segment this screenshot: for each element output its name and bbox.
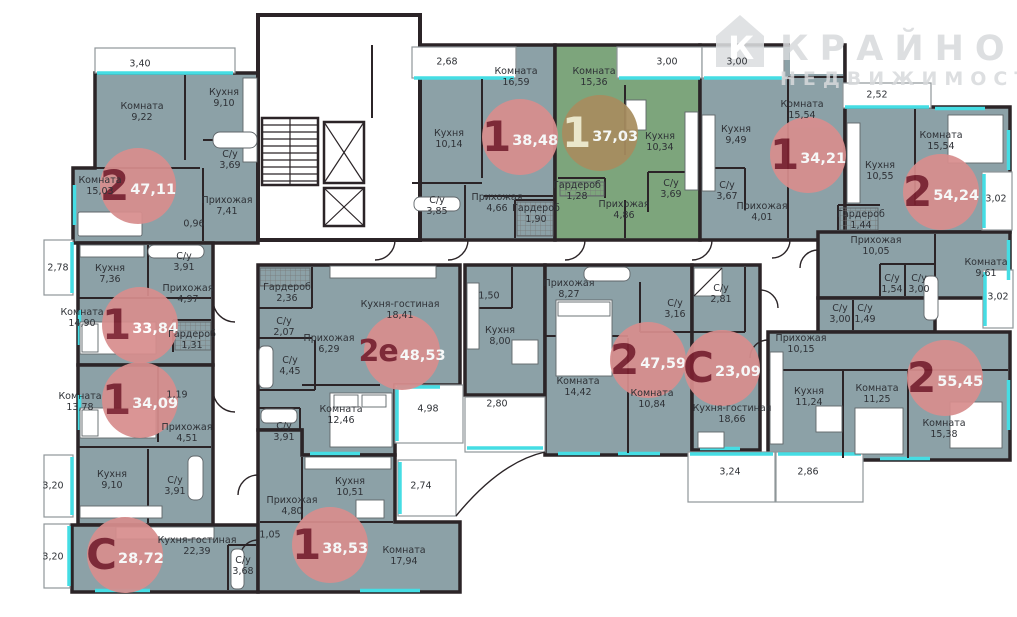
room-label: Кухня-гостиная22,39 bbox=[158, 535, 237, 557]
room-area: 18,66 bbox=[693, 414, 772, 425]
room-label: 3,02 bbox=[985, 193, 1006, 204]
room-area: 4,80 bbox=[267, 506, 318, 517]
room-area: 3,85 bbox=[426, 206, 447, 217]
room-label: 0,96 bbox=[183, 218, 204, 229]
room-label: Кухня9,49 bbox=[721, 124, 751, 146]
room-label: С/у2,07 bbox=[273, 316, 294, 338]
room-label: Прихожая10,15 bbox=[776, 333, 827, 355]
room-label: Кухня11,24 bbox=[794, 386, 824, 408]
room-area: 2,74 bbox=[410, 480, 431, 491]
room-label: Прихожая4,86 bbox=[599, 199, 650, 221]
room-area: 2,68 bbox=[436, 56, 457, 67]
room-label: Комната16,59 bbox=[494, 66, 537, 88]
room-name: Прихожая bbox=[162, 422, 213, 433]
room-area: 2,78 bbox=[47, 262, 68, 273]
room-name: Гардероб bbox=[168, 329, 216, 340]
room-area: 4,45 bbox=[279, 366, 300, 377]
apartment-total-area: 54,24 bbox=[933, 188, 979, 204]
room-name: Гардероб bbox=[263, 282, 311, 293]
room-area: 13,78 bbox=[58, 402, 101, 413]
room-label: Комната9,22 bbox=[120, 101, 163, 123]
room-label: Комната15,03 bbox=[78, 175, 121, 197]
apartment-type: С bbox=[86, 534, 116, 576]
room-label: 4,98 bbox=[417, 403, 438, 414]
room-area: 3,69 bbox=[660, 189, 681, 200]
room-label: Гардероб1,44 bbox=[837, 209, 885, 231]
floor-plan: К КРАЙНОВ НЕДВИЖИМОСТЬ 3,40Комната9,22Ку… bbox=[0, 0, 1017, 617]
room-area: 1,49 bbox=[854, 314, 875, 325]
room-label: Кухня-гостиная18,66 bbox=[693, 403, 772, 425]
room-name: Комната bbox=[120, 101, 163, 112]
room-area: 3,69 bbox=[219, 160, 240, 171]
apartment-total-area: 37,03 bbox=[592, 129, 638, 145]
room-area: 3,91 bbox=[273, 432, 294, 443]
apartment-total-area: 55,45 bbox=[937, 374, 983, 390]
room-label: Кухня-гостиная18,41 bbox=[361, 299, 440, 321]
apartment-badge[interactable]: С28,72 bbox=[87, 517, 163, 593]
room-name: Кухня bbox=[794, 386, 824, 397]
room-area: 9,22 bbox=[120, 112, 163, 123]
room-area: 10,84 bbox=[630, 399, 673, 410]
room-name: Прихожая bbox=[472, 192, 523, 203]
room-area: 22,39 bbox=[158, 546, 237, 557]
room-label: Кухня9,10 bbox=[209, 87, 239, 109]
apartment-badge[interactable]: 137,03 bbox=[562, 95, 638, 171]
room-area: 2,81 bbox=[710, 294, 731, 305]
apartment-type: С bbox=[683, 347, 713, 389]
room-area: 17,94 bbox=[382, 556, 425, 567]
room-area: 3,68 bbox=[232, 566, 253, 577]
room-label: Прихожая8,27 bbox=[544, 278, 595, 300]
room-name: С/у bbox=[908, 273, 929, 284]
room-name: Прихожая bbox=[776, 333, 827, 344]
room-area: 3,91 bbox=[164, 486, 185, 497]
room-area: 1,50 bbox=[478, 290, 499, 301]
apartment-badge[interactable]: 138,53 bbox=[292, 507, 368, 583]
room-label: Гардероб1,90 bbox=[512, 203, 560, 225]
room-label: Кухня10,34 bbox=[645, 131, 675, 153]
room-area: 3,24 bbox=[719, 466, 740, 477]
room-area: 2,52 bbox=[866, 89, 887, 100]
apartment-badge[interactable]: 247,59 bbox=[610, 322, 686, 398]
room-label: 2,78 bbox=[47, 262, 68, 273]
room-name: Комната bbox=[780, 99, 823, 110]
room-area: 9,61 bbox=[964, 268, 1007, 279]
room-name: Прихожая bbox=[267, 495, 318, 506]
room-label: Кухня7,36 bbox=[95, 263, 125, 285]
room-area: 4,98 bbox=[417, 403, 438, 414]
room-area: 7,36 bbox=[95, 274, 125, 285]
room-area: 10,55 bbox=[865, 171, 895, 182]
room-area: 8,27 bbox=[544, 289, 595, 300]
room-area: 3,02 bbox=[985, 193, 1006, 204]
room-name: Кухня bbox=[721, 124, 751, 135]
room-name: Кухня bbox=[865, 160, 895, 171]
room-name: Гардероб bbox=[837, 209, 885, 220]
room-name: Прихожая bbox=[304, 333, 355, 344]
room-area: 15,54 bbox=[919, 141, 962, 152]
room-label: Комната15,36 bbox=[572, 66, 615, 88]
kitchen-counter bbox=[305, 457, 391, 469]
room-area: 3,91 bbox=[173, 262, 194, 273]
room-label: Комната15,54 bbox=[919, 130, 962, 152]
room-name: С/у bbox=[660, 178, 681, 189]
room-label: 2,74 bbox=[410, 480, 431, 491]
room-area: 4,97 bbox=[163, 294, 214, 305]
room-label: Прихожая4,97 bbox=[163, 283, 214, 305]
room-name: Кухня bbox=[335, 476, 365, 487]
apartment-total-area: 48,53 bbox=[400, 348, 446, 364]
room-name: Комната bbox=[964, 257, 1007, 268]
apartment-badge[interactable]: 2е48,53 bbox=[364, 314, 440, 390]
room-name: С/у bbox=[173, 251, 194, 262]
room-name: Комната bbox=[855, 383, 898, 394]
room-area: 1,44 bbox=[837, 220, 885, 231]
apartment-type: 1 bbox=[292, 524, 320, 566]
room-label: Гардероб2,36 bbox=[263, 282, 311, 304]
kitchen-counter bbox=[243, 78, 257, 162]
room-area: 10,34 bbox=[645, 142, 675, 153]
room-area: 15,36 bbox=[572, 77, 615, 88]
room-name: С/у bbox=[279, 355, 300, 366]
room-name: С/у bbox=[273, 316, 294, 327]
room-name: Гардероб bbox=[512, 203, 560, 214]
room-name: С/у bbox=[829, 303, 850, 314]
table bbox=[512, 340, 538, 364]
room-label: 3,00 bbox=[726, 56, 747, 67]
apartment-total-area: 34,21 bbox=[800, 151, 846, 167]
room-label: Прихожая6,29 bbox=[304, 333, 355, 355]
room-name: Комната bbox=[556, 376, 599, 387]
room-name: С/у bbox=[854, 303, 875, 314]
room-label: 2,86 bbox=[797, 466, 818, 477]
room-name: Комната bbox=[60, 307, 103, 318]
room-name: С/у bbox=[232, 555, 253, 566]
room-label: Комната14,90 bbox=[60, 307, 103, 329]
room-name: Кухня-гостиная bbox=[693, 403, 772, 414]
room-label: С/у3,69 bbox=[219, 149, 240, 171]
apartment-type: 1 bbox=[102, 379, 130, 421]
room-name: Прихожая bbox=[202, 195, 253, 206]
room-label: Прихожая4,80 bbox=[267, 495, 318, 517]
room-area: 1,05 bbox=[259, 529, 280, 540]
room-name: Комната bbox=[319, 404, 362, 415]
apartment-total-area: 47,11 bbox=[130, 182, 176, 198]
room-area: 2,36 bbox=[263, 293, 311, 304]
room-name: Прихожая bbox=[737, 201, 788, 212]
room-name: Кухня bbox=[95, 263, 125, 274]
room-name: Комната bbox=[572, 66, 615, 77]
room-name: Прихожая bbox=[851, 235, 902, 246]
kitchen-counter bbox=[80, 245, 144, 257]
bathtub bbox=[213, 132, 257, 148]
apartment-type: 2 bbox=[907, 357, 935, 399]
room-label: Комната11,25 bbox=[855, 383, 898, 405]
room-name: Кухня-гостиная bbox=[361, 299, 440, 310]
stairwell-core bbox=[258, 15, 420, 240]
room-area: 3,20 bbox=[42, 551, 63, 562]
room-label: С/у4,45 bbox=[279, 355, 300, 377]
room-area: 3,16 bbox=[664, 309, 685, 320]
apartment-badge[interactable]: 138,48 bbox=[482, 99, 558, 175]
room-label: Комната13,78 bbox=[58, 391, 101, 413]
room-label: 3,00 bbox=[656, 56, 677, 67]
room-label: 3,24 bbox=[719, 466, 740, 477]
kitchen-counter bbox=[330, 266, 436, 278]
room-area: 3,20 bbox=[42, 480, 63, 491]
room-area: 10,05 bbox=[851, 246, 902, 257]
room-name: Прихожая bbox=[163, 283, 214, 294]
kitchen-counter bbox=[467, 283, 479, 349]
room-label: С/у3,91 bbox=[164, 475, 185, 497]
room-area: 15,03 bbox=[78, 186, 121, 197]
room-area: 3,00 bbox=[829, 314, 850, 325]
apartment-badge[interactable]: 254,24 bbox=[903, 154, 979, 230]
apartment-type: 1 bbox=[482, 116, 510, 158]
room-area: 10,15 bbox=[776, 344, 827, 355]
room-area: 14,42 bbox=[556, 387, 599, 398]
room-label: Прихожая10,05 bbox=[851, 235, 902, 257]
apartment-type: 1 bbox=[102, 304, 130, 346]
room-label: С/у3,16 bbox=[664, 298, 685, 320]
kitchen-counter bbox=[702, 115, 715, 191]
kitchen-counter bbox=[770, 352, 783, 444]
room-name: Гардероб bbox=[553, 180, 601, 191]
room-label: 2,52 bbox=[866, 89, 887, 100]
room-name: С/у bbox=[710, 283, 731, 294]
apartment-badge[interactable]: С23,09 bbox=[684, 330, 760, 406]
apartment-type: 2е bbox=[358, 337, 397, 367]
room-label: Комната10,84 bbox=[630, 388, 673, 410]
room-area: 3,00 bbox=[908, 284, 929, 295]
room-label: Кухня10,55 bbox=[865, 160, 895, 182]
room-label: С/у3,68 bbox=[232, 555, 253, 577]
room-label: Прихожая4,51 bbox=[162, 422, 213, 444]
room-area: 3,00 bbox=[656, 56, 677, 67]
room-label: Гардероб1,28 bbox=[553, 180, 601, 202]
room-label: 1,50 bbox=[478, 290, 499, 301]
apartment-type: 2 bbox=[903, 171, 931, 213]
room-area: 3,67 bbox=[716, 191, 737, 202]
room-label: 3,20 bbox=[42, 480, 63, 491]
apartment-total-area: 38,53 bbox=[322, 541, 368, 557]
room-label: С/у3,69 bbox=[660, 178, 681, 200]
room-area: 12,46 bbox=[319, 415, 362, 426]
room-area: 1,28 bbox=[553, 191, 601, 202]
room-name: Комната bbox=[382, 545, 425, 556]
room-area: 8,00 bbox=[485, 336, 515, 347]
room-area: 1,90 bbox=[512, 214, 560, 225]
table bbox=[698, 432, 724, 448]
room-label: С/у1,49 bbox=[854, 303, 875, 325]
apartment-total-area: 23,09 bbox=[715, 364, 761, 380]
room-label: Гардероб1,31 bbox=[168, 329, 216, 351]
room-area: 1,19 bbox=[166, 389, 187, 400]
room-name: Кухня bbox=[645, 131, 675, 142]
room-area: 4,01 bbox=[737, 212, 788, 223]
room-area: 11,24 bbox=[794, 397, 824, 408]
apartment-type: 2 bbox=[610, 339, 638, 381]
room-label: Комната12,46 bbox=[319, 404, 362, 426]
kitchen-counter bbox=[685, 112, 698, 190]
room-area: 2,86 bbox=[797, 466, 818, 477]
room-name: Кухня bbox=[209, 87, 239, 98]
table bbox=[816, 406, 842, 432]
room-name: Кухня bbox=[97, 469, 127, 480]
room-area: 2,07 bbox=[273, 327, 294, 338]
room-name: Комната bbox=[630, 388, 673, 399]
apartment-badge[interactable]: 255,45 bbox=[907, 340, 983, 416]
room-area: 6,29 bbox=[304, 344, 355, 355]
room-area: 10,14 bbox=[434, 139, 464, 150]
room-name: Комната bbox=[78, 175, 121, 186]
bathtub bbox=[188, 456, 203, 500]
room-area: 1,31 bbox=[168, 340, 216, 351]
room-name: Комната bbox=[58, 391, 101, 402]
table bbox=[356, 500, 384, 518]
room-label: 1,05 bbox=[259, 529, 280, 540]
room-label: Кухня10,51 bbox=[335, 476, 365, 498]
room-label: Комната15,54 bbox=[780, 99, 823, 121]
room-area: 10,51 bbox=[335, 487, 365, 498]
apartment-type: 1 bbox=[562, 112, 590, 154]
room-name: С/у bbox=[164, 475, 185, 486]
room-name: С/у bbox=[716, 180, 737, 191]
room-label: 3,20 bbox=[42, 551, 63, 562]
room-label: С/у1,54 bbox=[881, 273, 902, 295]
apartment-total-area: 38,48 bbox=[512, 133, 558, 149]
room-area: 3,40 bbox=[129, 58, 150, 69]
room-area: 9,10 bbox=[97, 480, 127, 491]
room-area: 3,02 bbox=[987, 291, 1008, 302]
room-name: С/у bbox=[664, 298, 685, 309]
room-label: С/у3,85 bbox=[426, 195, 447, 217]
room-name: Кухня-гостиная bbox=[158, 535, 237, 546]
room-area: 11,25 bbox=[855, 394, 898, 405]
room-label: С/у3,67 bbox=[716, 180, 737, 202]
room-label: Комната17,94 bbox=[382, 545, 425, 567]
room-label: Кухня9,10 bbox=[97, 469, 127, 491]
room-label: 3,02 bbox=[987, 291, 1008, 302]
room-area: 0,96 bbox=[183, 218, 204, 229]
room-name: Комната bbox=[494, 66, 537, 77]
room-area: 15,54 bbox=[780, 110, 823, 121]
room-label: Комната15,38 bbox=[922, 418, 965, 440]
room-name: Прихожая bbox=[599, 199, 650, 210]
room-label: Кухня10,14 bbox=[434, 128, 464, 150]
room-label: Кухня8,00 bbox=[485, 325, 515, 347]
bathtub bbox=[259, 346, 273, 388]
room-label: 2,80 bbox=[486, 398, 507, 409]
room-name: Кухня bbox=[434, 128, 464, 139]
room-label: Прихожая7,41 bbox=[202, 195, 253, 217]
apartment-type: 1 bbox=[770, 134, 798, 176]
room-area: 16,59 bbox=[494, 77, 537, 88]
room-label: С/у2,81 bbox=[710, 283, 731, 305]
building-notch bbox=[790, 41, 843, 74]
bed bbox=[855, 408, 903, 454]
room-area: 9,10 bbox=[209, 98, 239, 109]
room-label: Комната14,42 bbox=[556, 376, 599, 398]
room-label: 1,19 bbox=[166, 389, 187, 400]
room-area: 4,86 bbox=[599, 210, 650, 221]
room-area: 15,38 bbox=[922, 429, 965, 440]
room-area: 14,90 bbox=[60, 318, 103, 329]
room-label: Комната9,61 bbox=[964, 257, 1007, 279]
room-area: 18,41 bbox=[361, 310, 440, 321]
apartment-total-area: 47,59 bbox=[640, 356, 686, 372]
apartment-badge[interactable]: 134,21 bbox=[770, 117, 846, 193]
room-name: Прихожая bbox=[544, 278, 595, 289]
room-label: С/у3,91 bbox=[273, 421, 294, 443]
room-name: С/у bbox=[273, 421, 294, 432]
room-label: С/у3,00 bbox=[829, 303, 850, 325]
room-label: Прихожая4,01 bbox=[737, 201, 788, 223]
room-name: С/у bbox=[426, 195, 447, 206]
room-name: Комната bbox=[919, 130, 962, 141]
room-area: 9,49 bbox=[721, 135, 751, 146]
room-area: 4,51 bbox=[162, 433, 213, 444]
room-name: С/у bbox=[219, 149, 240, 160]
room-label: 3,40 bbox=[129, 58, 150, 69]
room-area: 2,80 bbox=[486, 398, 507, 409]
room-label: 2,68 bbox=[436, 56, 457, 67]
kitchen-counter bbox=[847, 123, 860, 203]
room-label: С/у3,00 bbox=[908, 273, 929, 295]
room-name: Комната bbox=[922, 418, 965, 429]
room-area: 3,00 bbox=[726, 56, 747, 67]
room-area: 1,54 bbox=[881, 284, 902, 295]
room-name: Кухня bbox=[485, 325, 515, 336]
room-area: 7,41 bbox=[202, 206, 253, 217]
room-name: С/у bbox=[881, 273, 902, 284]
room-label: С/у3,91 bbox=[173, 251, 194, 273]
